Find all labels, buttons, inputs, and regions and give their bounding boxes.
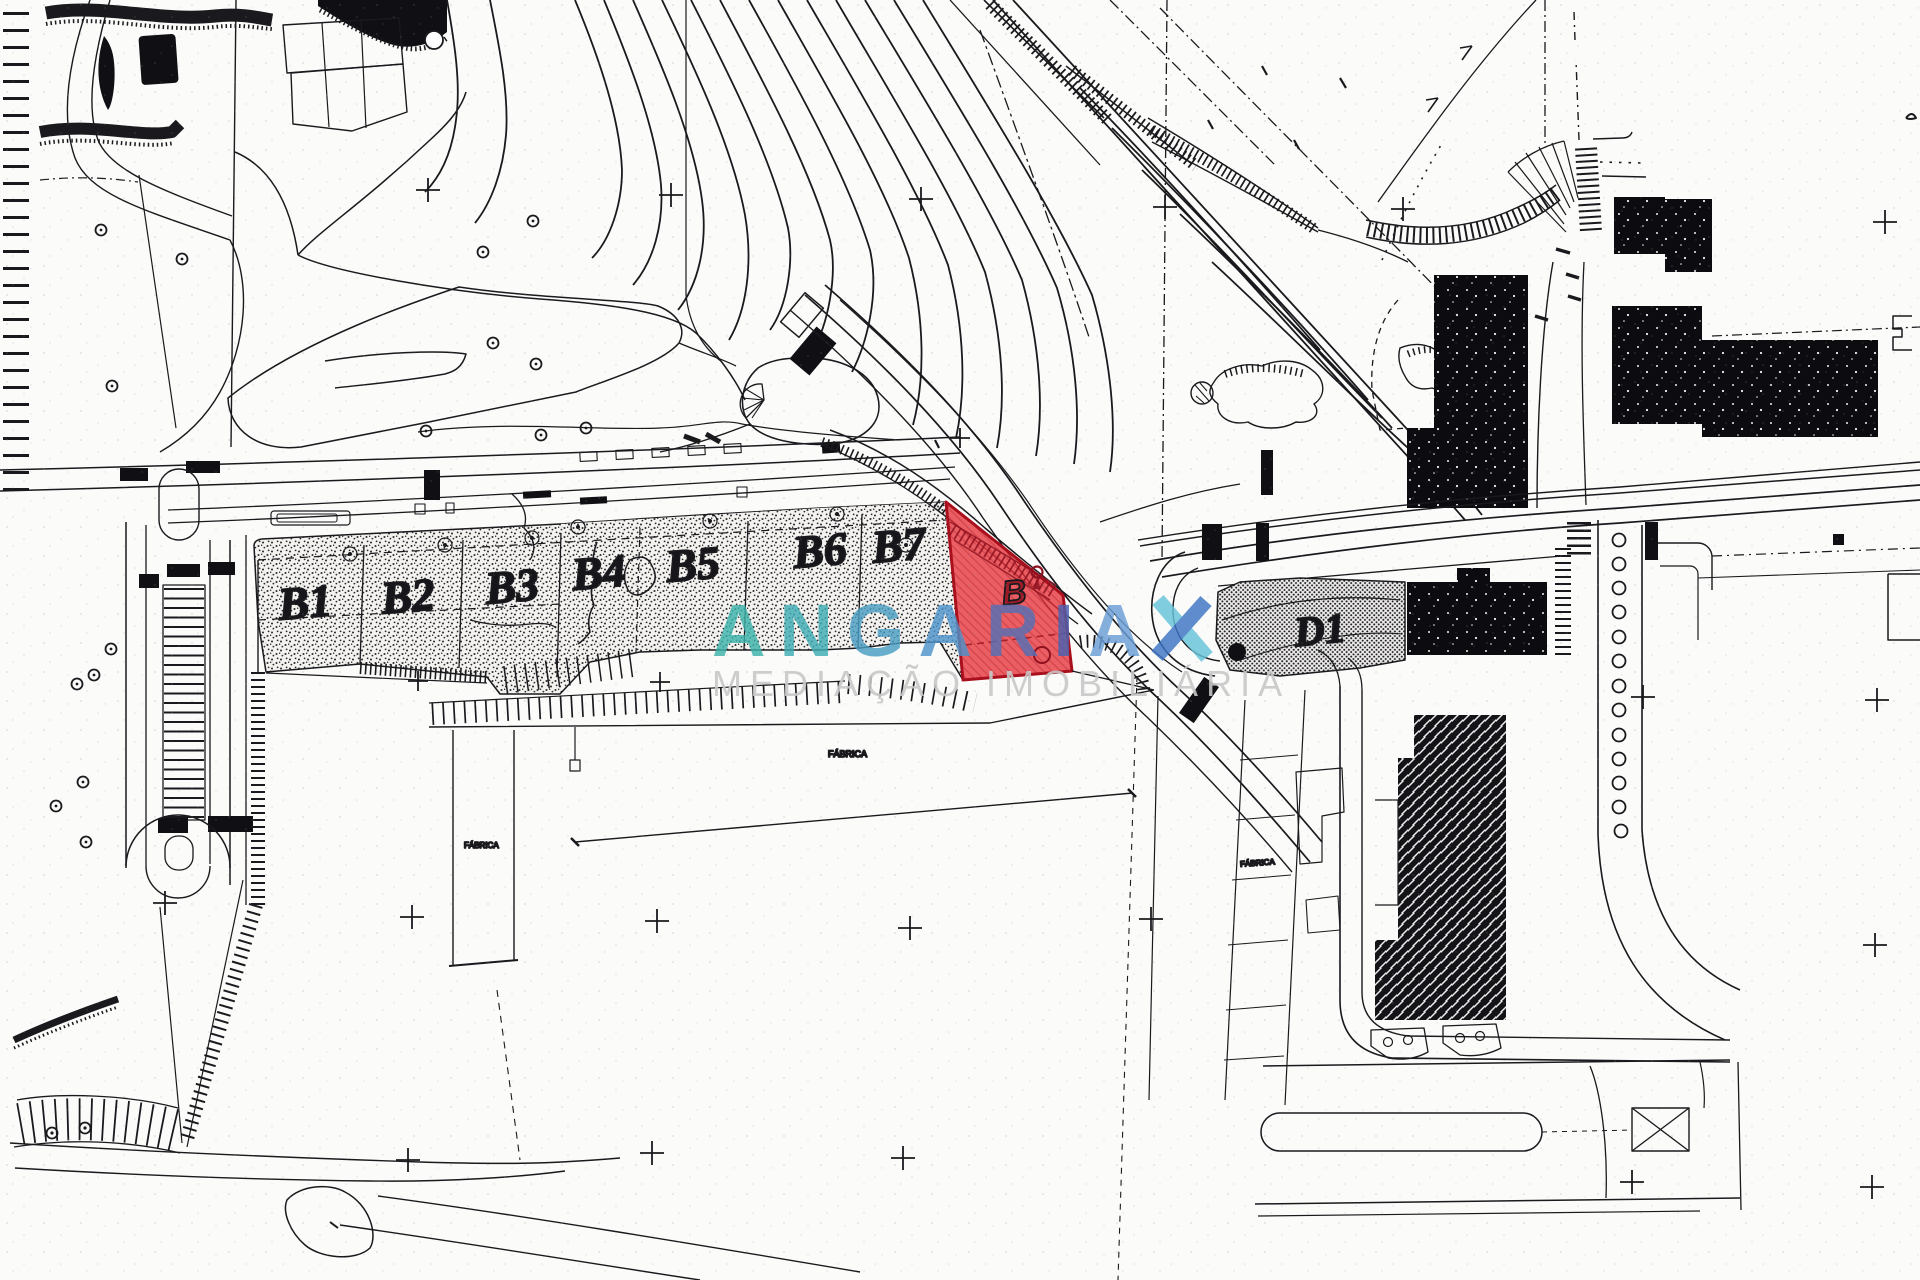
svg-text:MEDIAÇÃO IMOBILIÁRIA: MEDIAÇÃO IMOBILIÁRIA <box>712 663 1290 704</box>
svg-text:ANGARIA: ANGARIA <box>712 589 1155 672</box>
